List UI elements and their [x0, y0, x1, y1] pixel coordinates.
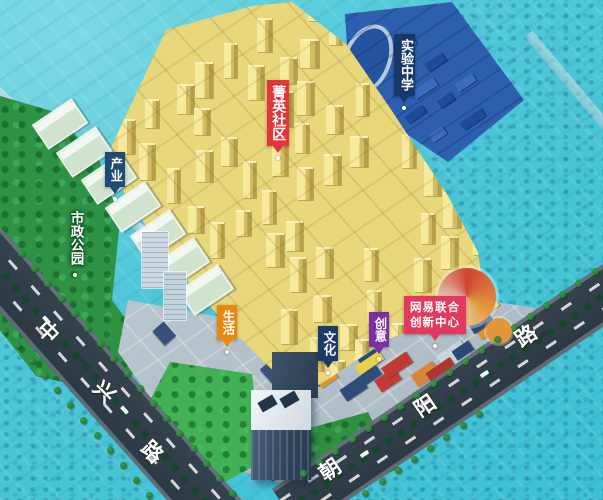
street-tree [559, 291, 566, 298]
street-tree [494, 336, 501, 343]
residential-tower [356, 83, 369, 116]
street-tree [443, 434, 450, 441]
label-pointer [110, 187, 120, 194]
label-anchor-dot [377, 357, 381, 361]
residential-tower [308, 0, 323, 21]
street-tree [58, 295, 65, 302]
street-tree [71, 310, 78, 317]
street-tree [397, 403, 404, 410]
street-tree [430, 380, 437, 387]
street-tree [84, 325, 91, 332]
residential-tower [266, 233, 284, 267]
street-tree [379, 478, 386, 485]
residential-tower [224, 43, 237, 78]
residential-tower [210, 222, 224, 257]
label-innovation-center: 网易联合 创新中心 [404, 296, 466, 348]
residential-tower [236, 210, 251, 237]
street-tree [592, 268, 599, 275]
label-industry-zone: 产业 [105, 152, 125, 201]
street-tree [349, 436, 356, 443]
residential-tower [257, 18, 272, 52]
label-community-zone: 菁英社区 [267, 80, 289, 160]
residential-tower [262, 190, 275, 224]
label-anchor-dot [276, 156, 280, 160]
glass-office-building [164, 272, 186, 320]
masterplan-rendering: 中 兴 路 朝 阳 路 实验中学 菁英社区 产业 市政公园 生活 文化 创意 [0, 0, 603, 500]
street-tree [446, 369, 453, 376]
label-pointer [430, 334, 440, 341]
label-school-zone: 实验中学 [394, 34, 415, 110]
label-text: 生活 [217, 305, 237, 340]
street-tree [362, 490, 369, 497]
residential-tower [297, 81, 314, 114]
residential-tower [414, 258, 430, 292]
label-pointer [273, 146, 283, 153]
residential-tower [139, 143, 155, 180]
school-building [437, 92, 455, 108]
residential-tower [364, 248, 378, 281]
residential-tower [188, 206, 204, 233]
label-text: 创意 [369, 312, 389, 347]
label-culture-zone: 文化 [318, 326, 338, 375]
street-tree [478, 347, 485, 354]
residential-tower [243, 161, 256, 198]
school-building [412, 77, 439, 99]
street-tree [543, 302, 550, 309]
label-anchor-dot [402, 106, 406, 110]
roof-skylight [279, 390, 299, 408]
residential-tower [177, 84, 194, 114]
office-tower [251, 390, 311, 480]
street-tree [476, 411, 483, 418]
school-building [454, 73, 476, 92]
label-text: 菁英社区 [267, 80, 289, 146]
school-building [424, 53, 446, 72]
street-tree [216, 475, 223, 482]
residential-tower [167, 168, 180, 203]
residential-tower [402, 134, 416, 168]
street-tree [395, 467, 402, 474]
school-building [429, 126, 447, 142]
residential-tower [324, 154, 341, 185]
label-anchor-dot [73, 273, 77, 277]
street-tree [120, 462, 127, 469]
label-text: 网易联合 创新中心 [404, 296, 466, 334]
label-text: 产业 [105, 152, 125, 187]
label-municipal-park: 市政公园 [64, 206, 86, 277]
retail-roof [152, 321, 175, 345]
label-line2: 创新中心 [410, 315, 460, 330]
street-tree [460, 422, 467, 429]
residential-tower [326, 105, 343, 134]
street-tree [575, 280, 582, 287]
street-tree [381, 414, 388, 421]
street-tree [300, 470, 307, 477]
street-tree [203, 460, 210, 467]
street-tree [462, 358, 469, 365]
label-anchor-dot [326, 371, 330, 375]
school-building [460, 108, 487, 130]
residential-tower [286, 221, 302, 251]
label-pointer [374, 347, 384, 354]
roof-skylight [257, 394, 277, 412]
residential-tower [329, 18, 342, 44]
label-text: 文化 [318, 326, 338, 361]
residential-tower [290, 257, 305, 291]
residential-tower [281, 309, 297, 344]
residential-tower [421, 213, 435, 245]
street-tree [28, 357, 35, 364]
label-pointer [222, 340, 232, 347]
street-tree [190, 445, 197, 452]
street-tree [137, 385, 144, 392]
residential-tower [316, 247, 333, 278]
street-tree [94, 432, 101, 439]
office-tower-roof [251, 390, 311, 430]
residential-tower [194, 108, 210, 134]
residential-tower [441, 236, 458, 269]
label-anchor-dot [225, 350, 229, 354]
street-tree [365, 425, 372, 432]
label-life-zone: 生活 [217, 305, 237, 354]
residential-tower [340, 324, 357, 351]
label-anchor-dot [113, 197, 117, 201]
residential-tower [145, 99, 158, 128]
residential-tower [248, 65, 265, 100]
label-text: 市政公园 [64, 206, 86, 270]
label-line1: 网易联合 [410, 300, 460, 315]
street-tree [18, 250, 25, 257]
label-pointer [399, 96, 409, 103]
street-tree [107, 447, 114, 454]
street-tree [54, 387, 61, 394]
street-tree [124, 370, 131, 377]
label-pointer [323, 361, 333, 368]
label-anchor-dot [433, 344, 437, 348]
residential-tower [350, 136, 368, 167]
residential-tower [297, 167, 312, 200]
residential-tower [295, 123, 309, 153]
residential-tower [195, 62, 213, 98]
street-tree [150, 400, 157, 407]
residential-tower [300, 39, 319, 68]
street-tree [411, 456, 418, 463]
label-text: 实验中学 [394, 34, 415, 96]
residential-tower [221, 137, 237, 166]
street-tree [427, 445, 434, 452]
street-tree [41, 372, 48, 379]
residential-tower [196, 150, 213, 182]
label-creative-zone: 创意 [369, 312, 389, 361]
residential-tower [313, 295, 332, 322]
residential-tower [118, 119, 135, 154]
